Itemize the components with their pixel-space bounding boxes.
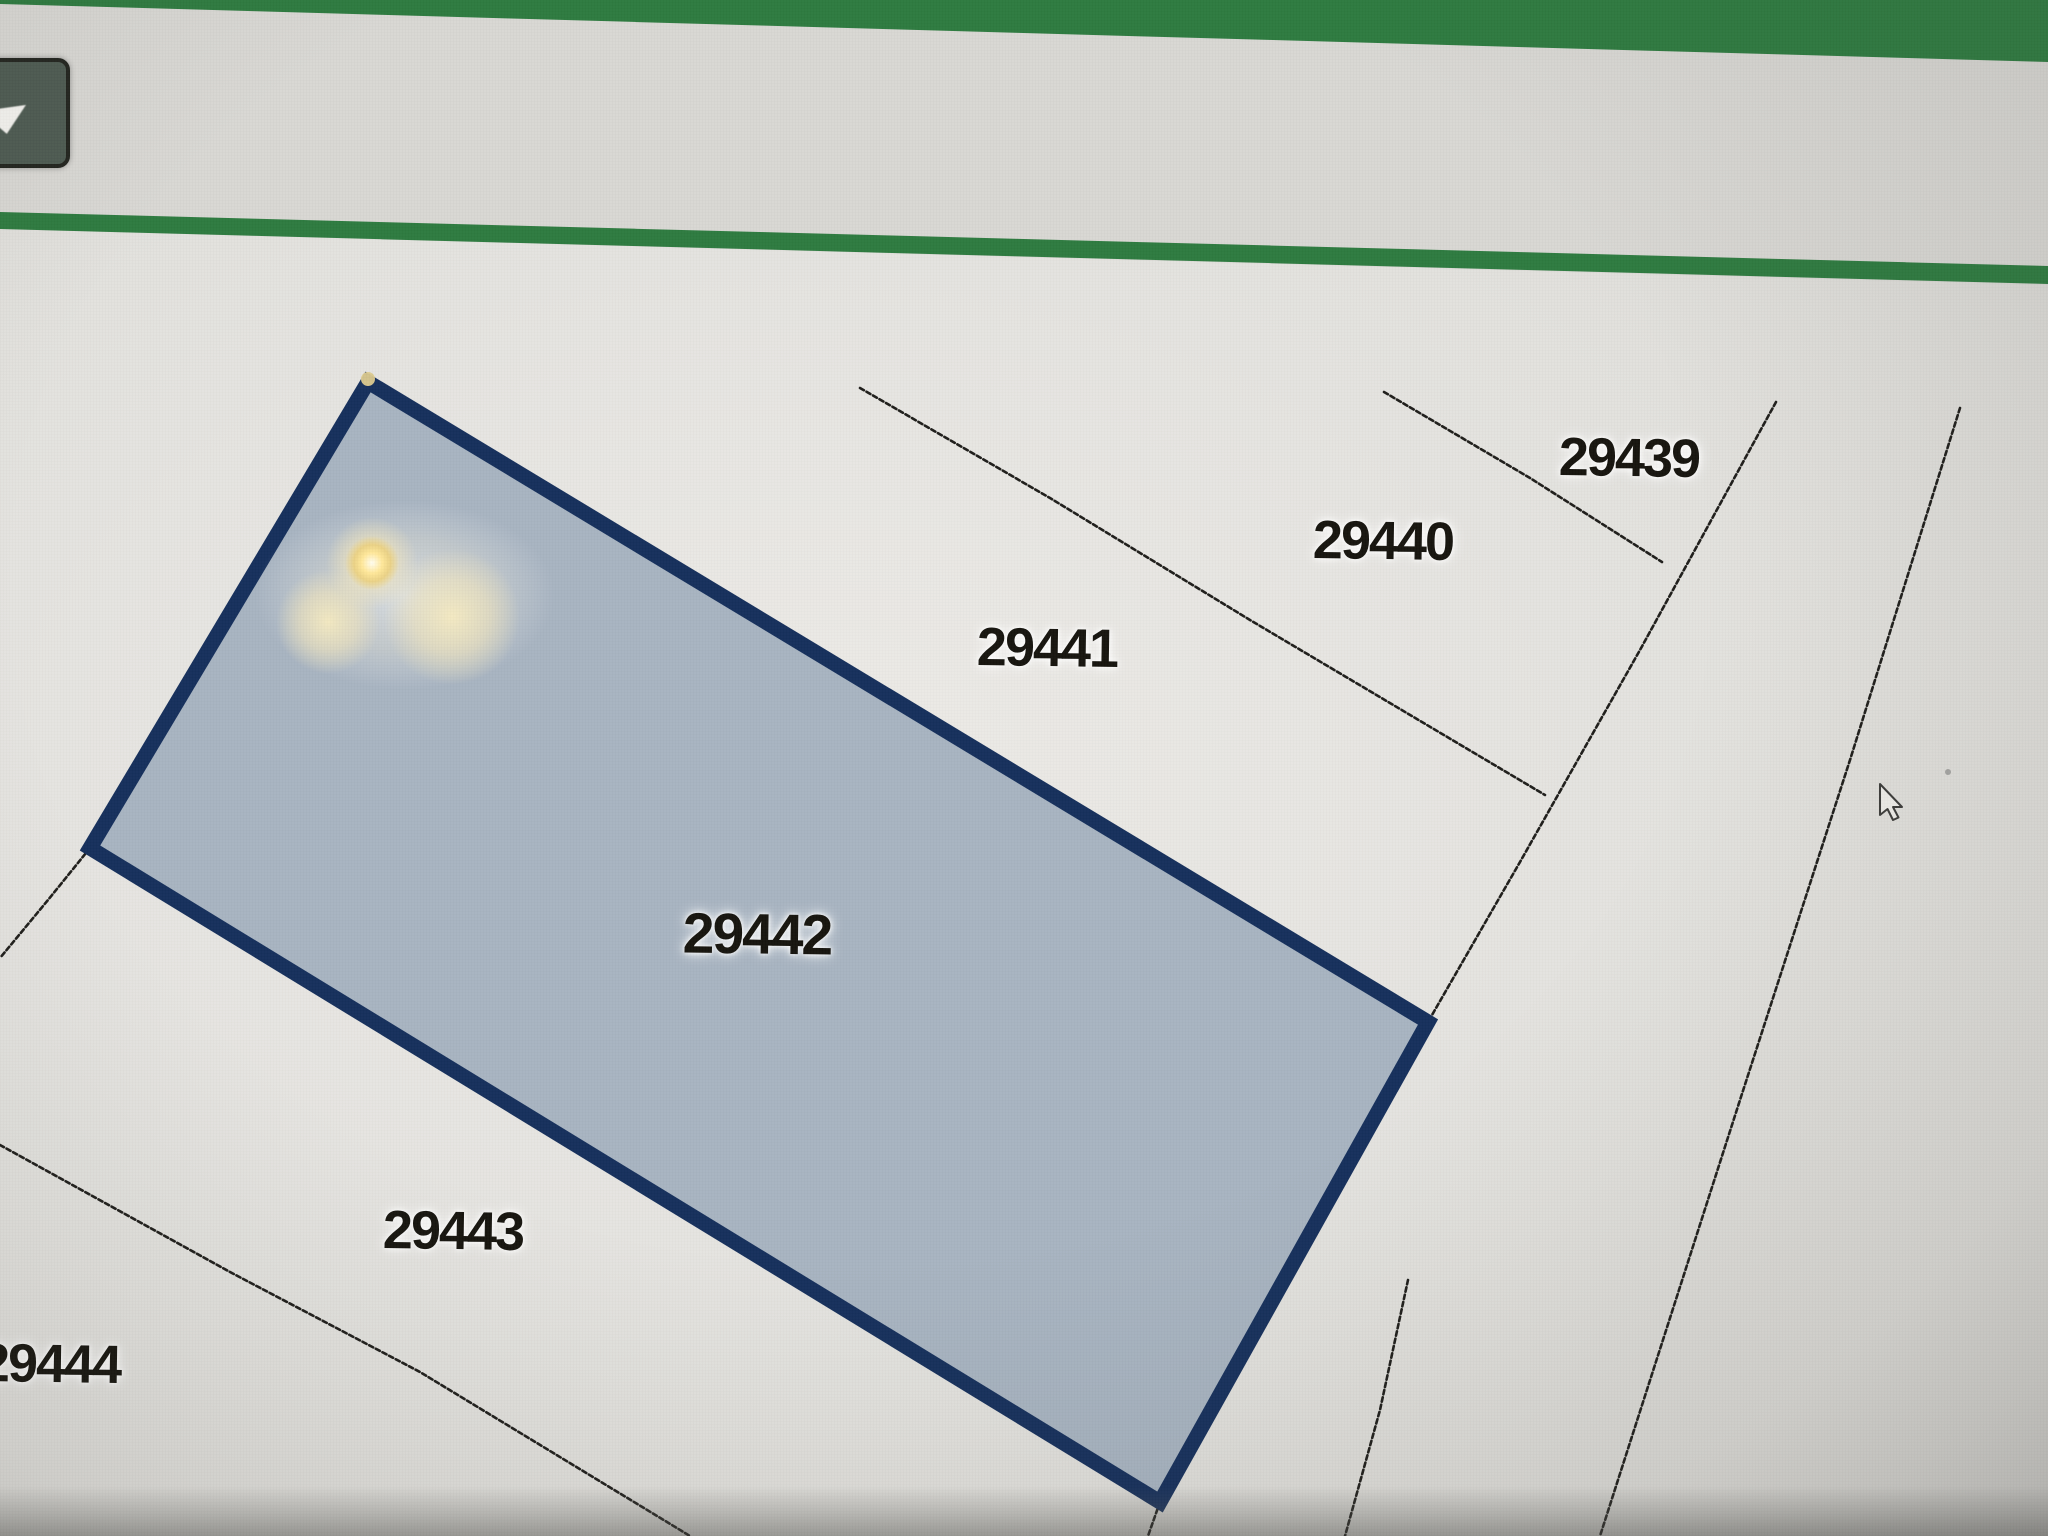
dropdown-button[interactable] [0, 58, 70, 168]
screen-photo: 29439 29440 29441 29442 29443 29444 [0, 0, 2048, 1536]
parcel-label-29442: 29442 [682, 905, 831, 964]
dust-speck [1945, 769, 1951, 775]
parcel-label-29439: 29439 [1559, 430, 1700, 486]
parcel-label-29441: 29441 [977, 620, 1118, 676]
parcel-label-29443: 29443 [383, 1203, 524, 1259]
map-canvas[interactable] [0, 0, 2048, 1536]
chevron-down-icon [0, 105, 30, 137]
parcel-label-29444: 29444 [0, 1336, 121, 1392]
parcel-label-29440: 29440 [1313, 513, 1454, 569]
vertex-glint [361, 372, 375, 386]
